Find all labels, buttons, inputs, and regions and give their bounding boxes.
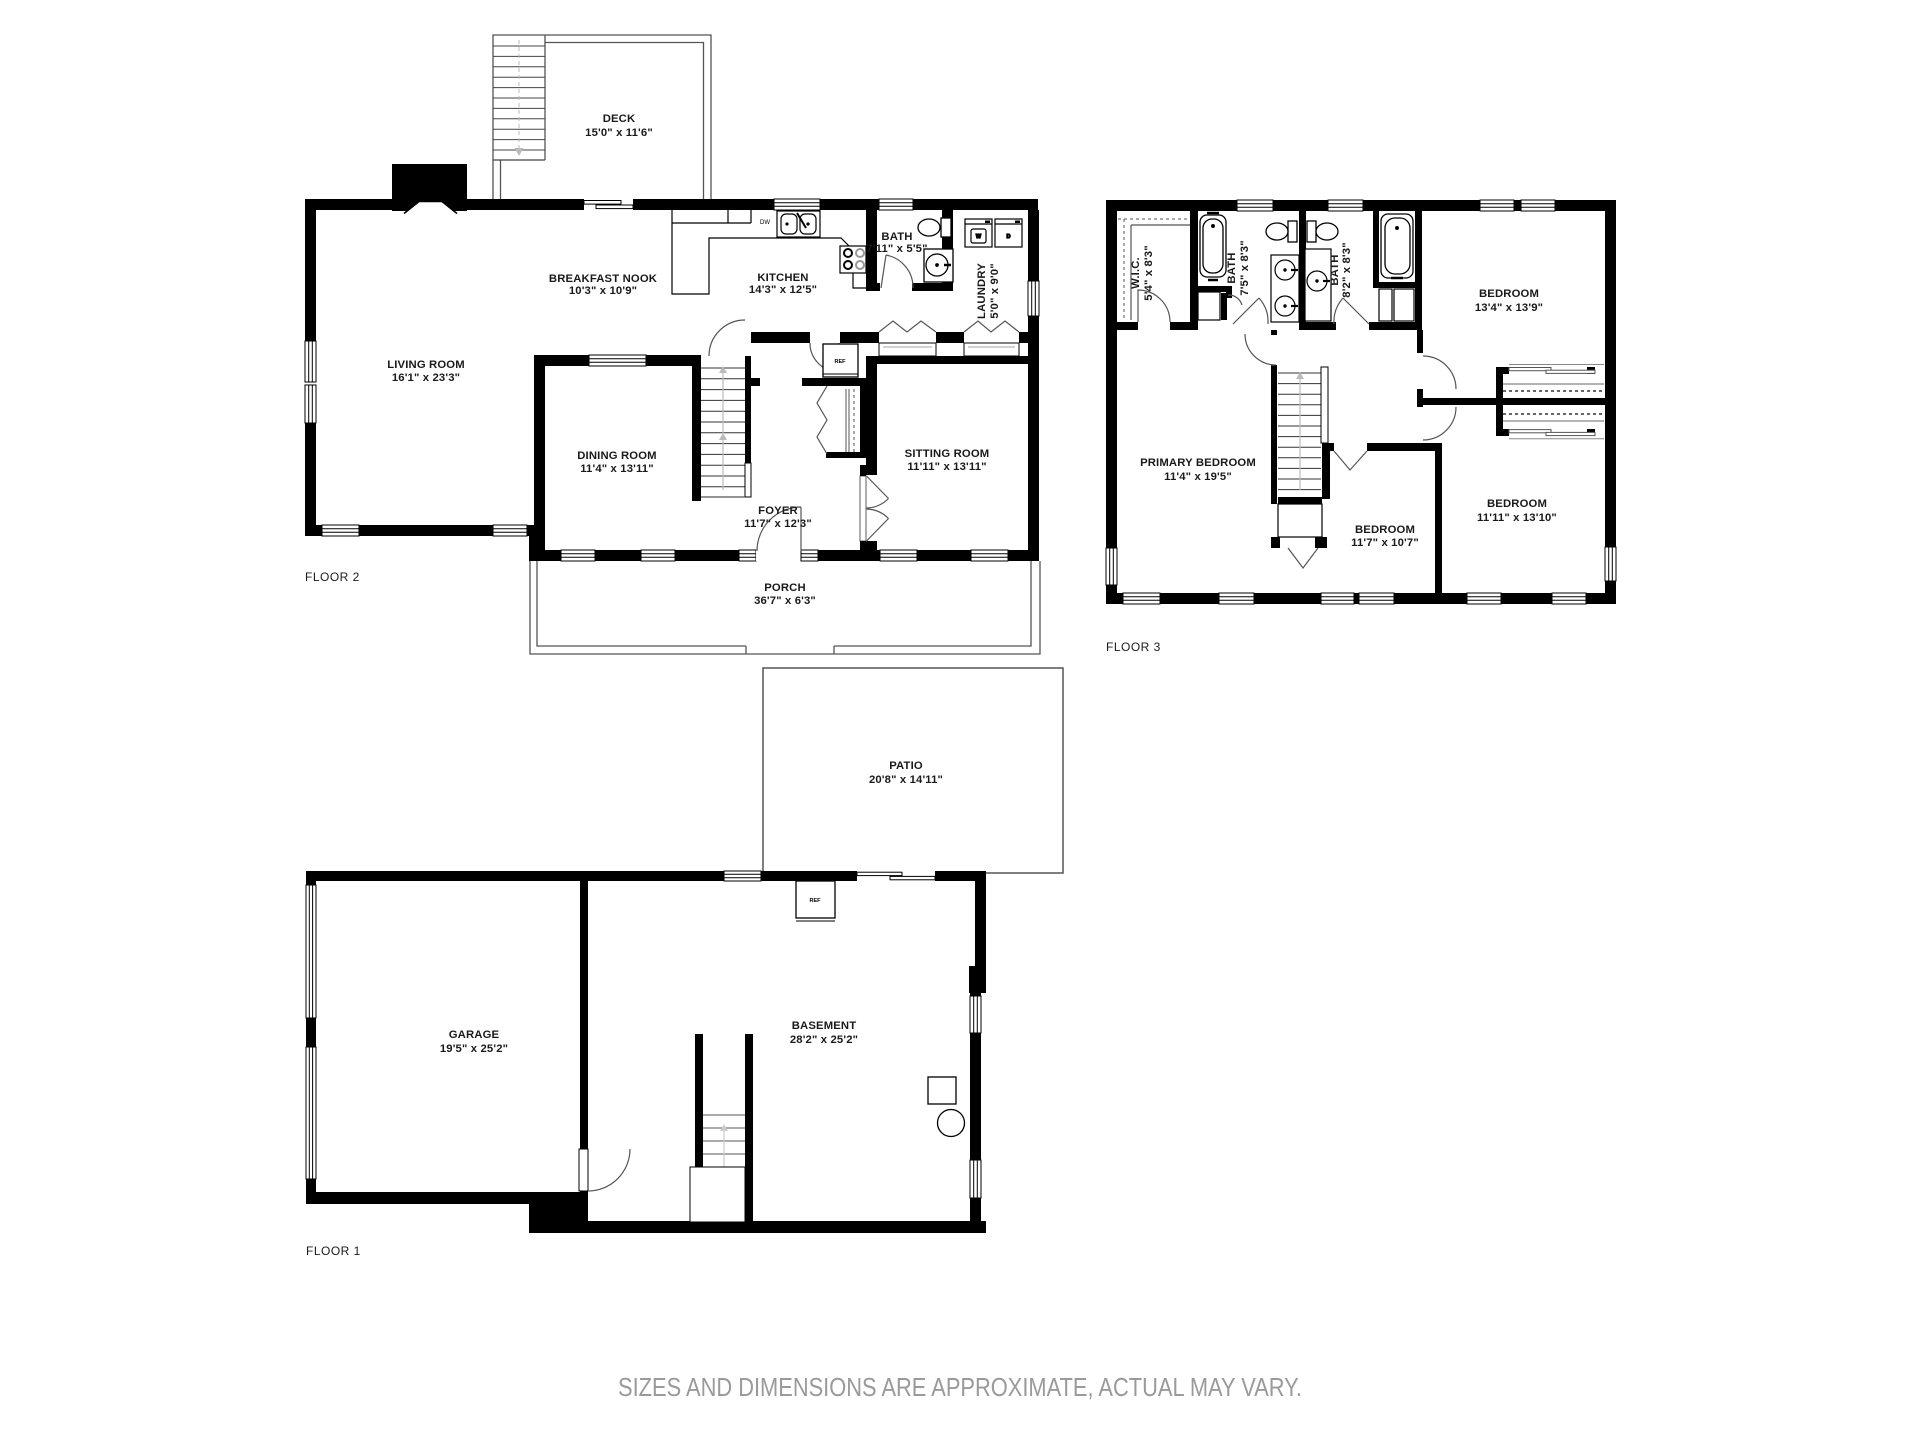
svg-text:19'5" x 25'2": 19'5" x 25'2": [440, 1043, 508, 1055]
svg-text:GARAGE: GARAGE: [449, 1029, 500, 1041]
svg-text:13'4" x 13'9": 13'4" x 13'9": [1475, 302, 1543, 314]
svg-text:11'4" x 19'5": 11'4" x 19'5": [1164, 471, 1232, 483]
svg-text:11'7" x 10'7": 11'7" x 10'7": [1351, 537, 1419, 549]
svg-text:LAUNDRY: LAUNDRY: [976, 263, 988, 319]
svg-text:PORCH: PORCH: [764, 582, 806, 594]
svg-text:11'11" x 13'10": 11'11" x 13'10": [1477, 512, 1557, 524]
svg-text:8'2" x 8'3": 8'2" x 8'3": [1341, 242, 1353, 297]
svg-text:LIVING ROOM: LIVING ROOM: [387, 359, 465, 371]
svg-text:11'11" x 13'11": 11'11" x 13'11": [907, 461, 986, 473]
svg-text:REF: REF: [835, 359, 847, 365]
svg-text:36'7" x 6'3": 36'7" x 6'3": [754, 595, 816, 607]
svg-text:FOYER: FOYER: [758, 505, 798, 517]
svg-text:PRIMARY BEDROOM: PRIMARY BEDROOM: [1140, 457, 1256, 469]
svg-text:15'0" x 11'6": 15'0" x 11'6": [585, 127, 653, 139]
svg-text:5'4" x 8'3": 5'4" x 8'3": [1143, 245, 1155, 300]
svg-text:FLOOR 1: FLOOR 1: [306, 1244, 361, 1258]
svg-text:11'7" x 12'3": 11'7" x 12'3": [744, 518, 812, 530]
svg-text:W: W: [976, 234, 982, 240]
svg-text:20'8" x 14'11": 20'8" x 14'11": [869, 774, 943, 786]
svg-text:DINING ROOM: DINING ROOM: [577, 450, 656, 462]
svg-text:11'4" x 13'11": 11'4" x 13'11": [580, 463, 653, 475]
svg-text:REF: REF: [810, 898, 822, 904]
svg-text:BEDROOM: BEDROOM: [1487, 498, 1547, 510]
svg-text:DECK: DECK: [603, 113, 636, 125]
svg-text:7'5" x 8'3": 7'5" x 8'3": [1239, 240, 1251, 295]
svg-text:KITCHEN: KITCHEN: [757, 272, 808, 284]
svg-text:5'0" x 9'0": 5'0" x 9'0": [989, 263, 1001, 318]
svg-text:SIZES AND DIMENSIONS ARE APPRO: SIZES AND DIMENSIONS ARE APPROXIMATE, AC…: [618, 1374, 1302, 1402]
svg-text:28'2" x 25'2": 28'2" x 25'2": [790, 1034, 858, 1046]
svg-text:BEDROOM: BEDROOM: [1355, 524, 1415, 536]
svg-text:BATH: BATH: [1226, 252, 1238, 283]
svg-text:14'3" x 12'5": 14'3" x 12'5": [749, 284, 817, 296]
svg-text:7'11" x 5'5": 7'11" x 5'5": [866, 243, 927, 255]
svg-text:W.I.C.: W.I.C.: [1130, 257, 1142, 289]
svg-text:BASEMENT: BASEMENT: [792, 1020, 857, 1032]
svg-text:BEDROOM: BEDROOM: [1479, 288, 1539, 300]
svg-text:16'1" x 23'3": 16'1" x 23'3": [392, 372, 460, 384]
svg-text:D: D: [1007, 234, 1011, 240]
svg-text:BATH: BATH: [1329, 254, 1341, 285]
svg-text:BATH: BATH: [881, 231, 912, 243]
svg-text:DW: DW: [760, 220, 770, 226]
svg-text:FLOOR 2: FLOOR 2: [305, 570, 360, 584]
svg-text:PATIO: PATIO: [889, 760, 923, 772]
svg-text:FLOOR 3: FLOOR 3: [1106, 640, 1161, 654]
svg-text:SITTING ROOM: SITTING ROOM: [905, 448, 990, 460]
svg-text:BREAKFAST NOOK: BREAKFAST NOOK: [549, 273, 658, 285]
svg-text:10'3" x 10'9": 10'3" x 10'9": [569, 285, 637, 297]
